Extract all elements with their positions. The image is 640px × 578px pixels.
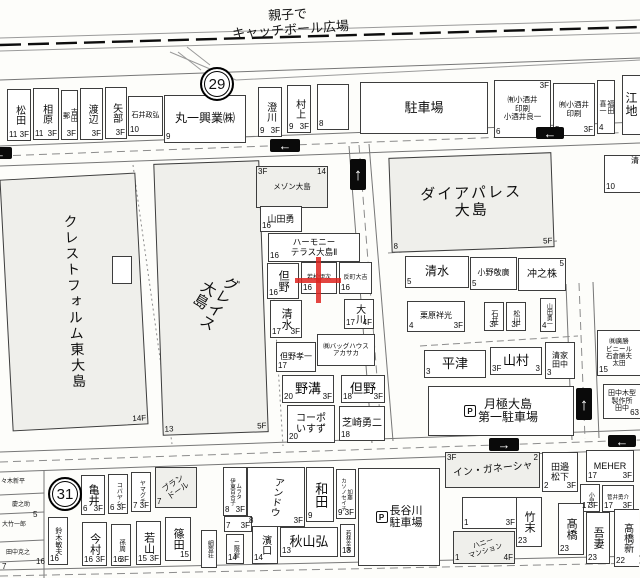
map-building: 10清	[604, 155, 640, 193]
map-building: 菅井勇介173F	[602, 485, 634, 512]
lot-number: 3F	[300, 123, 309, 131]
lot-number: 16	[84, 556, 93, 564]
one-way-arrow-icon: →	[489, 438, 519, 451]
lot-number: 9	[289, 123, 293, 131]
lot-number: 3F	[241, 522, 250, 530]
map-building: 矢部3F	[105, 87, 127, 139]
building-label: 丸一興業㈱	[175, 112, 235, 125]
lot-number: 63	[630, 409, 639, 417]
block-number-circle: 29	[200, 67, 234, 101]
lot-number: 4F	[363, 319, 372, 327]
lot-number: 5F	[543, 237, 553, 245]
lot-number: 14F	[132, 414, 146, 423]
building-label: イン・ガネーシャ	[452, 460, 533, 479]
lot-number: 3F	[492, 365, 501, 373]
map-building: イン・ガネーシャ3F2	[445, 452, 540, 488]
building-label: 山田勇	[267, 214, 294, 224]
map-building: 篠田15	[165, 517, 191, 561]
map-building: 芝崎勇二18	[339, 406, 385, 441]
map-building: 濱口14	[252, 526, 278, 564]
map-building: ㈱バッグハウス アカサカ	[317, 334, 375, 366]
lot-number: 8	[225, 506, 229, 514]
lot-number: 3F	[454, 322, 463, 330]
map-building: コバヤシ63F	[108, 474, 128, 514]
building-label: 野溝	[295, 382, 321, 397]
lot-number: 18	[343, 393, 352, 401]
building-label: 和田	[313, 482, 328, 508]
edge-label: 慶之助	[12, 499, 30, 508]
map-building: 清水5	[405, 256, 469, 288]
lot-number: 16	[270, 252, 279, 260]
lot-number: 20	[284, 393, 293, 401]
lot-number: 4	[599, 124, 603, 132]
building-label: 月極大島 第一駐車場	[478, 398, 538, 425]
lot-number: 14	[228, 554, 237, 562]
map-building: ダイアパレス 大島85F	[388, 152, 554, 253]
building-label: 吾妻	[592, 527, 604, 549]
map-building: 石井政弘10	[128, 96, 163, 136]
building-label: 長谷川 駐車場	[390, 505, 423, 530]
lot-number: 3F	[540, 82, 549, 90]
lot-number: 3F	[623, 472, 632, 480]
edge-label: 大竹一郎	[2, 519, 26, 528]
lot-number: 3F	[511, 321, 520, 329]
building-label: 矢部	[110, 103, 121, 123]
lot-number: 17	[588, 472, 597, 480]
lot-number: 3F	[116, 129, 125, 137]
building-label: 髙橋新	[621, 523, 632, 553]
map-building: 吉田 郵3F	[61, 90, 78, 140]
lot-number: 3	[547, 369, 551, 377]
map-building: ムラタ 伊東百合子83F	[223, 467, 247, 516]
map-building: 73F	[224, 516, 252, 532]
lot-number: 3F	[345, 509, 354, 517]
map-building: ハニー マンション14F	[453, 531, 515, 564]
map-building: 和田9	[306, 467, 334, 522]
lot-number: 6	[496, 128, 500, 136]
map-building: 丸一興業㈱9	[164, 95, 246, 143]
lot-number: 16	[262, 222, 271, 230]
lot-number: 17	[278, 362, 287, 370]
building-label: 鈴木敏夫	[54, 527, 62, 555]
building-label: 吉田 郵	[62, 108, 78, 122]
lot-number: 15	[599, 366, 608, 374]
map-building: 亀井63F	[81, 475, 105, 515]
block-number-circle: 31	[48, 477, 82, 511]
map-building: コーポ いすず20	[287, 405, 335, 443]
lot-number: 9	[338, 509, 342, 517]
building-label: 栗原祥光	[420, 312, 452, 321]
lot-number: 3F	[94, 505, 103, 513]
lot-number: 3F	[374, 393, 383, 401]
lot-number: 3F	[506, 519, 515, 527]
lot-number: 13	[164, 425, 173, 433]
building-label: 反町大吉	[343, 275, 367, 282]
map-building: 冲之株5	[518, 258, 566, 291]
lot-number: 3F	[236, 506, 245, 514]
lot-number: 3F	[294, 517, 303, 525]
lot-number: 3F	[489, 321, 498, 329]
lot-number: 13	[282, 547, 291, 555]
lot-number: 3F	[584, 126, 593, 134]
lot-number: 3	[536, 365, 540, 373]
lot-number: 1	[455, 554, 459, 562]
lot-number: 3F	[92, 130, 101, 138]
lot-number: 23	[588, 554, 597, 562]
map-building: クレストフォルム東大島14F	[0, 173, 149, 432]
building-label: 孫周	[117, 539, 124, 552]
building-label: 小野敬廣	[478, 269, 510, 278]
one-way-arrow-icon: ←	[608, 435, 636, 447]
lot-number: 17	[272, 328, 281, 336]
map-building: 秋山弘13	[280, 527, 338, 557]
building-label: ハーモニー テラス大島Ⅱ	[291, 238, 338, 257]
lot-number: 18	[341, 431, 350, 439]
edge-label: 々木新平	[1, 476, 25, 485]
lot-number: 11	[35, 130, 43, 138]
building-label: ㈲小酒井 印刷 小酒井良一	[504, 96, 542, 121]
map-building: 鈴木敏夫16	[48, 517, 68, 565]
building-label: 渡辺	[86, 104, 97, 124]
lot-number: 23	[560, 545, 569, 553]
building-label: クレストフォルム東大島	[62, 214, 87, 391]
lot-number: 16	[303, 284, 312, 292]
lot-number: 3F	[271, 127, 280, 135]
map-building: 若林幸男13	[340, 524, 355, 557]
lot-number: 8	[393, 243, 398, 251]
lot-number: 3F	[140, 502, 149, 510]
building-label: 清家 田中	[552, 352, 568, 370]
map-building: 清水173F	[270, 300, 302, 338]
building-label: 今村	[88, 533, 100, 555]
lot-number: 15	[138, 555, 147, 563]
map-building: 村上93F	[287, 85, 311, 133]
building-label: 平津	[442, 357, 468, 372]
map-building: 栗原祥光43F	[407, 301, 465, 332]
building-label: 澄川	[264, 102, 275, 122]
lot-number: 清	[631, 157, 639, 165]
lot-number: 7	[226, 522, 230, 530]
edge-label: 16	[36, 557, 45, 566]
lot-number: 6	[110, 504, 114, 512]
lot-number: 3F	[567, 482, 576, 490]
lot-number: 22	[616, 557, 625, 565]
lot-number: 16	[269, 289, 278, 297]
map-building: 13F	[462, 497, 517, 529]
residential-map: 親子で キャッチボール広場 松田113F相原113F吉田 郵3F渡辺3F矢部3F…	[0, 0, 640, 578]
map-building: 松川3F	[506, 302, 526, 331]
lot-number: 2	[534, 454, 538, 462]
building-label: 松田	[13, 105, 24, 125]
map-building: P長谷川 駐車場	[358, 468, 440, 566]
lot-number: 3F	[48, 130, 57, 138]
lot-number: 3F	[447, 454, 456, 462]
map-building: 平津3	[424, 350, 486, 378]
building-label: 江 地	[625, 92, 637, 119]
map-building: 細萱荘	[201, 530, 217, 568]
building-label: アンドウ	[268, 476, 285, 517]
lot-number: 17	[346, 319, 355, 327]
parking-icon: P	[464, 405, 476, 417]
map-building: 山村3F3	[490, 347, 542, 375]
lot-number: 4	[409, 322, 413, 330]
building-label: 加藤 カソノセイチ	[340, 478, 352, 511]
lot-number: 2	[544, 482, 548, 490]
lot-number: 14	[254, 554, 263, 562]
map-building: 孫周163F	[111, 524, 131, 566]
building-label: 若山	[142, 532, 154, 554]
one-way-arrow-icon: ←	[0, 147, 12, 159]
edge-label: 5	[33, 510, 37, 519]
building-label: 芝崎勇二	[342, 418, 382, 429]
map-building: 反町大吉16	[339, 262, 372, 294]
map-building: 渡辺3F	[80, 88, 103, 140]
map-building: 小早173F	[580, 484, 600, 512]
edge-label: 7	[2, 562, 6, 571]
map-building: 山田勇16	[260, 206, 302, 232]
map-building: 髙橋23	[558, 503, 584, 555]
map-building: 江 地	[622, 75, 640, 135]
building-label: 濱口	[259, 535, 270, 555]
building-label: 竹末	[523, 511, 535, 533]
map-building: アンドウ83F	[247, 467, 305, 527]
map-building: 若山153F	[136, 521, 161, 565]
lot-number: 3F	[67, 130, 76, 138]
lot-number: 5	[407, 278, 411, 286]
lot-number: 5	[472, 280, 476, 288]
lot-number: 7	[157, 498, 161, 506]
map-building: ハーモニー テラス大島Ⅱ16	[268, 233, 360, 262]
lot-number: 3F	[323, 393, 332, 401]
lot-number: 16	[341, 284, 350, 292]
target-cross-marker	[295, 278, 341, 283]
lot-number: 4	[542, 322, 546, 330]
building-label: 冲之株	[527, 269, 557, 280]
map-building: ヤマグチ73F	[131, 472, 151, 512]
building-label: MEHER	[594, 461, 627, 471]
lot-number: 8	[319, 120, 323, 128]
lot-number: 3F	[589, 502, 598, 510]
map-building: 相原113F	[33, 88, 59, 140]
map-building: 加藤 カソノセイチ93F	[336, 469, 356, 519]
building-label: 秋山弘	[289, 535, 328, 550]
map-building: 8	[317, 84, 349, 130]
map-building: 髙橋新22	[614, 509, 639, 567]
building-label: 福田 喜一	[598, 100, 614, 114]
map-building: 田中木型 製作所 田中63	[603, 384, 640, 419]
map-building: MEHER173F	[586, 450, 634, 482]
lot-number: 1	[464, 519, 468, 527]
building-label: 石井政弘	[132, 112, 160, 120]
lot-number: 23	[518, 537, 527, 545]
lot-number: 15	[180, 551, 189, 559]
building-label: 田邉 松下	[551, 462, 569, 482]
map-building: 澄川93F	[258, 87, 282, 137]
map-building: 山田勇一4	[540, 298, 556, 332]
lot-number: 3F	[291, 328, 300, 336]
map-building: 小野敬廣5	[470, 257, 517, 290]
building-label: グレイス 大島	[181, 264, 241, 333]
building-label: ㈱廣勝 ビニール 石倉勝夫 太田	[606, 338, 632, 367]
lot-number: 20	[289, 433, 298, 441]
building-label: ダイアパレス 大島	[420, 184, 523, 221]
map-building: P月極大島 第一駐車場	[428, 386, 574, 436]
lot-number: 16	[50, 555, 59, 563]
edge-label: 田中克之	[6, 547, 30, 556]
lot-number: 3F	[20, 131, 29, 139]
lot-number: 11	[9, 131, 17, 139]
building-label: 但野	[350, 382, 376, 397]
map-building: 駐車場	[360, 82, 488, 134]
lot-number: 3F	[120, 556, 129, 564]
map-building: 清家 田中3	[545, 342, 575, 379]
building-label: 駐車場	[404, 101, 443, 116]
lot-number: 5	[560, 260, 564, 268]
map-building: グレイス 大島135F	[153, 160, 268, 436]
lot-number: 9	[260, 127, 264, 135]
map-building: 今村163F	[82, 522, 107, 566]
lot-number: 13	[342, 547, 351, 555]
building-label: ㈲小酒井 印刷	[559, 101, 589, 118]
building-label: 清水	[425, 265, 449, 278]
lot-number: 17	[604, 502, 613, 510]
lot-number: 4F	[504, 554, 513, 562]
map-building: ㈱廣勝 ビニール 石倉勝夫 太田15	[597, 330, 640, 376]
map-building: 大川174F	[344, 299, 374, 329]
map-building: 石井3F	[484, 302, 504, 331]
map-building: 但野孝一17	[276, 342, 316, 372]
lot-number: 9	[166, 133, 170, 141]
lot-number: 10	[606, 183, 615, 191]
one-way-arrow-icon: ↑	[576, 388, 592, 420]
building-label: 細萱荘	[206, 540, 213, 558]
one-way-arrow-icon: ←	[536, 127, 564, 139]
lot-number: 3F	[150, 555, 159, 563]
building-label: 相原	[40, 104, 51, 124]
one-way-arrow-icon: ↑	[350, 159, 366, 190]
lot-number: 10	[130, 126, 139, 134]
lot-number: 14	[317, 168, 326, 176]
lot-number: 3F	[623, 502, 632, 510]
building-label: 髙橋	[565, 518, 577, 540]
building-label: ㈱バッグハウス アカサカ	[323, 343, 369, 358]
map-building: ブラン ドール7	[155, 467, 197, 508]
building-label: 山村	[503, 354, 529, 369]
map-building: メゾン大島3F14	[256, 166, 328, 208]
building-label: メゾン大島	[273, 183, 311, 191]
building-label: コーポ いすず	[296, 413, 326, 435]
lot-number: 9	[308, 512, 312, 520]
building-label: ブラン ドール	[161, 473, 191, 501]
building-label: 村上	[293, 99, 304, 119]
map-building: 吾妻23	[586, 512, 610, 564]
map-building: 田邉 松下23F	[542, 452, 578, 492]
lot-number: 3F	[258, 168, 267, 176]
map-building: 野溝203F	[282, 375, 334, 403]
building-label: ハニー マンション	[465, 535, 503, 561]
map-building: 但野183F	[341, 375, 385, 403]
map-building: 二階堂14	[226, 534, 244, 564]
lot-number: 5F	[257, 422, 267, 430]
one-way-arrow-icon: ←	[270, 139, 300, 152]
parking-icon: P	[376, 511, 388, 523]
map-building	[112, 256, 132, 284]
map-building: 竹末23	[516, 497, 542, 547]
lot-number: 3F	[117, 504, 126, 512]
building-label: 但野	[277, 270, 289, 292]
map-building: 福田 喜一4	[597, 80, 615, 134]
building-label: ムラタ 伊東百合子	[229, 478, 241, 506]
map-building: 松田113F	[7, 89, 31, 141]
lot-number: 7	[133, 502, 137, 510]
building-label: 亀井	[87, 484, 99, 506]
lot-number: 3F	[96, 556, 105, 564]
lot-number: 6	[83, 505, 87, 513]
building-label: 篠田	[172, 528, 184, 550]
lot-number: 3	[426, 368, 430, 376]
